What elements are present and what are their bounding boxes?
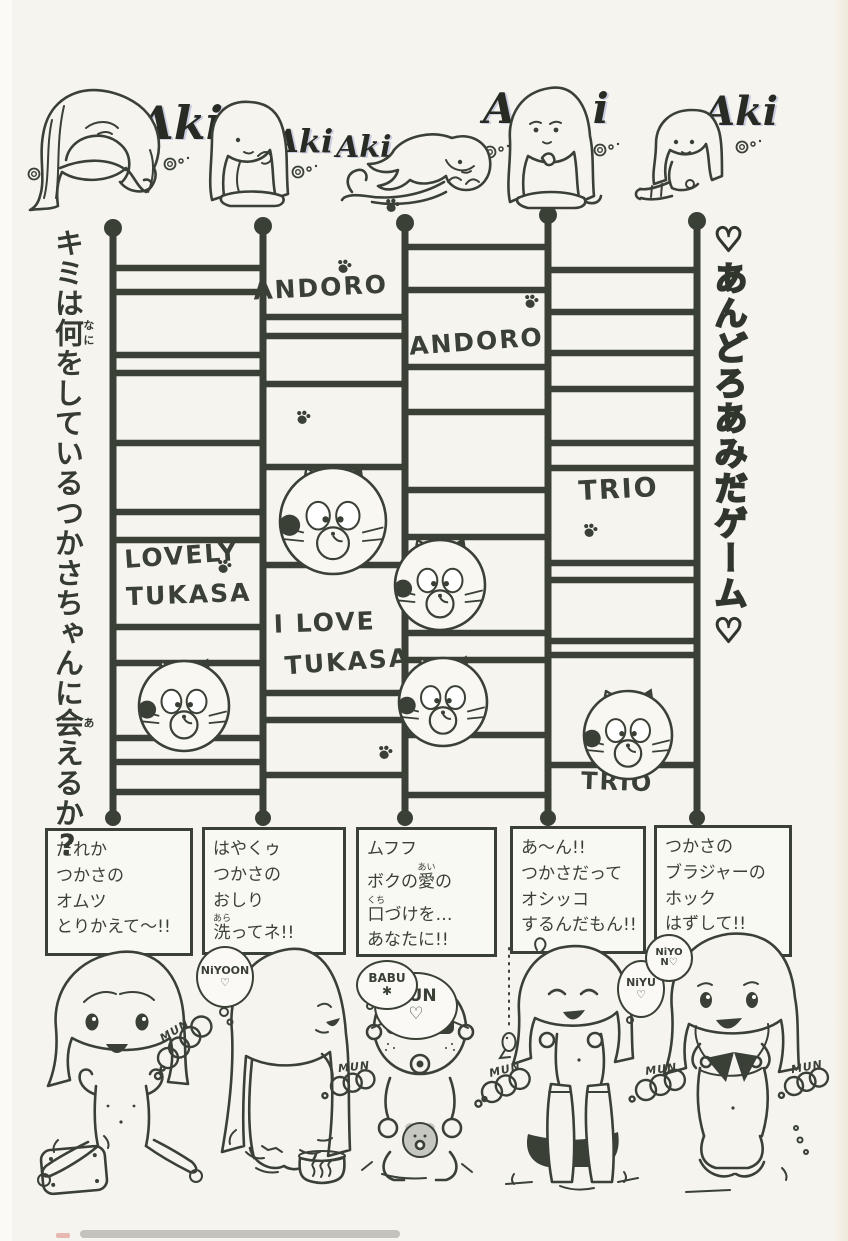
ladder-bottom-dot: [540, 810, 556, 826]
paw-print-icon: [581, 522, 598, 539]
ladder-bottom-dot: [105, 810, 121, 826]
ladder-bottom-dot: [397, 810, 413, 826]
ladder-top-dot: [254, 217, 272, 235]
bubble-dots-decoration: [737, 140, 762, 153]
bottom-character-potty-girl: [500, 938, 633, 1182]
cat-face-illustration: [583, 690, 672, 779]
speech-bubble-babu: BABU ✱: [356, 960, 418, 1010]
bubble-text: ♡: [408, 1006, 423, 1024]
top-character-huddled-girl: [30, 90, 159, 210]
bubble-text: ♡: [220, 977, 230, 989]
ladder-label: TRIO: [578, 472, 660, 507]
top-character-clasped-hands-girl: [508, 88, 601, 208]
bubble-text: ♡: [636, 989, 646, 1001]
speech-bubble-niyo-n: NiYO N♡: [645, 934, 693, 982]
fish-charm-icon: [503, 1033, 516, 1051]
mun-sound-effect-3: MUN: [468, 1058, 534, 1107]
paw-print-icon: [522, 293, 539, 310]
bubble-text: ✱: [382, 985, 392, 998]
ladder-top-dot: [104, 219, 122, 237]
diaper-mat-illustration: [40, 1145, 108, 1194]
ladder-top-dot: [396, 214, 414, 232]
ladder-label: ANDORO: [408, 322, 544, 360]
bottom-character-diaper-girl: [38, 952, 202, 1195]
manga-page: Aki Aki Aki Aki Aki だれか つかさの オムツ とりかえて〜!…: [0, 0, 848, 1241]
cat-face-illustration: [279, 467, 386, 574]
bubble-dots-decoration: [165, 157, 190, 170]
ladder-bottom-dot: [255, 810, 271, 826]
ladder-label: I LOVE: [273, 606, 376, 639]
bubble-dots-decoration: [595, 143, 620, 156]
cat-face-illustration: [394, 539, 485, 630]
ladder-bottom-dot: [689, 810, 705, 826]
svg-text:MUN: MUN: [337, 1059, 370, 1075]
paw-print-icon: [376, 744, 393, 761]
ladder-label: TUKASA: [284, 643, 411, 681]
steaming-pot-illustration: [299, 1151, 345, 1183]
top-character-lying-girl: [342, 134, 490, 203]
ladder-label: ANDORO: [252, 270, 388, 306]
svg-text:MUN: MUN: [488, 1059, 522, 1079]
top-character-sitting-girl: [636, 110, 722, 199]
paw-print-icon: [383, 197, 400, 214]
paw-print-icon: [294, 409, 311, 426]
scan-smudge: [80, 1230, 400, 1238]
cat-face-illustration: [398, 657, 487, 746]
bubble-dots-decoration: [293, 165, 318, 178]
top-character-kneeling-girl: [210, 102, 288, 206]
svg-text:MUN: MUN: [645, 1060, 679, 1077]
ladder-label: TUKASA: [126, 578, 252, 611]
left-question-title: キミは何なにをしているつかさちゃんに会あえるか?: [50, 228, 94, 863]
bikini-top-illustration: [706, 1052, 734, 1082]
speech-bubble-niyoon: NiYOON ♡: [196, 946, 254, 1008]
cat-face-illustration: [138, 660, 229, 751]
scan-speck: [56, 1233, 70, 1238]
bubble-text: N♡: [660, 958, 677, 969]
right-game-title: ♡あんどろあみだゲーム♡: [704, 220, 752, 652]
